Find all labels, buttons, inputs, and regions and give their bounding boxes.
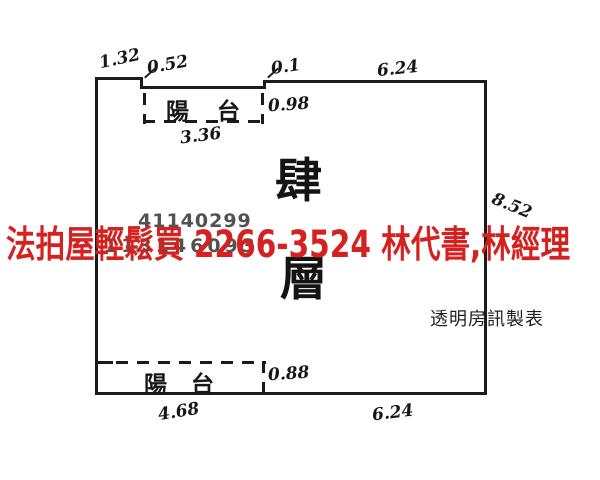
wall-top-left-segment: [95, 77, 143, 80]
wall-top-right-segment: [263, 80, 487, 83]
dim-bottom-left-width: 4.68: [157, 399, 201, 425]
dim-top-left-width: 1.32: [97, 45, 142, 73]
balcony-bottom-wall-stub: [98, 361, 113, 364]
floor-label-char-top: 肆: [275, 158, 322, 205]
dim-balcony-top-depth: 0.98: [267, 94, 310, 117]
balcony-top-label: 陽 台: [166, 92, 250, 126]
dim-bottom-right-width: 6.24: [371, 401, 415, 426]
dim-top-notch: 0.52: [146, 52, 190, 79]
dim-top-step: 0.1: [270, 55, 302, 79]
maker-credit: 透明房訊製表: [430, 305, 544, 331]
floorplan-canvas: 1.32 0.52 0.1 6.24 0.98 3.36 8.52 0.88 4…: [0, 0, 600, 480]
wall-balcony-top-edge: [140, 86, 266, 89]
ad-overlay-text: 法拍屋輕鬆買 2266-3524 林代書,林經理: [6, 224, 570, 267]
dim-right-height: 8.52: [489, 189, 535, 223]
balcony-top-dashed-right: [261, 93, 264, 124]
balcony-bottom-dashed-right: [262, 361, 265, 394]
dim-balcony-bottom-depth: 0.88: [267, 363, 310, 386]
balcony-bottom-dashed-top: [116, 361, 266, 364]
dim-balcony-top-width: 3.36: [179, 124, 223, 149]
balcony-bottom-label: 陽 台: [144, 365, 222, 399]
dim-top-right-width: 6.24: [376, 57, 419, 81]
